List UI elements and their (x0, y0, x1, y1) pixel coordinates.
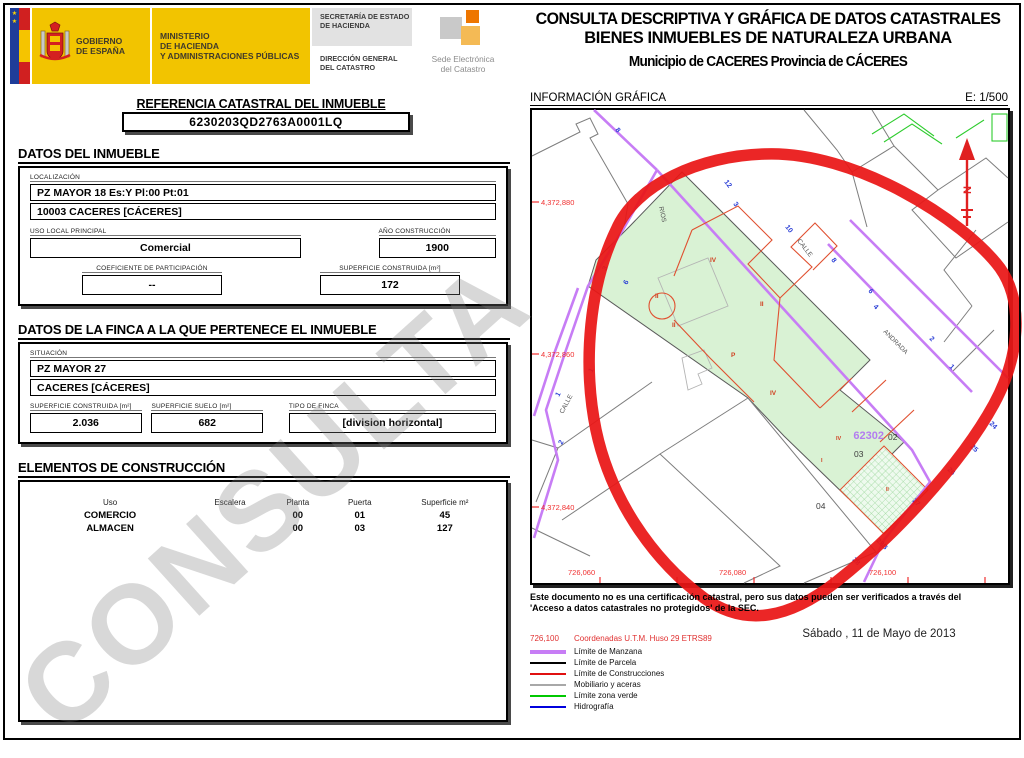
direccion-line2: DEL CATASTRO (320, 64, 412, 73)
cell-superficie: 45 (392, 509, 498, 522)
title-line2: BIENES INMUEBLES DE NATURALEZA URBANA (522, 29, 1014, 48)
spain-flag-strip (19, 8, 30, 84)
svg-text:04: 04 (816, 501, 826, 511)
section-datos-finca: DATOS DE LA FINCA A LA QUE PERTENECE EL … (18, 322, 510, 340)
informacion-grafica-label: INFORMACIÓN GRÁFICA (530, 92, 666, 104)
localizacion-line2: 10003 CACERES [CÁCERES] (30, 203, 496, 220)
svg-text:II: II (672, 322, 676, 329)
note-line2: 'Acceso a datos catastrales no protegido… (530, 603, 759, 613)
map-header-row: INFORMACIÓN GRÁFICA E: 1/500 (530, 92, 1008, 106)
map-svg: CALLE RIOS CALLE ANDRADA 8 12 3 10 8 6 3… (532, 110, 1008, 583)
datos-finca-box: SITUACIÓN PZ MAYOR 27 CACERES [CÁCERES] … (18, 342, 508, 444)
col-planta: Planta (268, 496, 328, 509)
anio-value: 1900 (379, 238, 497, 258)
situacion-line1: PZ MAYOR 27 (30, 360, 496, 377)
document-title: CONSULTA DESCRIPTIVA Y GRÁFICA DE DATOS … (522, 10, 1014, 70)
cell-superficie: 127 (392, 522, 498, 535)
localizacion-label: LOCALIZACIÓN (30, 174, 496, 182)
tipo-finca-value: [division horizontal] (289, 413, 496, 433)
manzana-number: 62302 (853, 430, 884, 442)
sup-suelo-value: 682 (151, 413, 263, 433)
gobierno-line2: DE ESPAÑA (76, 46, 125, 56)
elementos-box: Uso Escalera Planta Puerta Superficie m²… (18, 480, 508, 722)
sup-value: 172 (320, 275, 460, 295)
cell-planta: 00 (268, 522, 328, 535)
svg-text:II: II (655, 293, 659, 300)
sup-suelo-label: SUPERFICIE SUELO [m²] (151, 403, 263, 411)
localizacion-line1: PZ MAYOR 18 Es:Y Pl:00 Pt:01 (30, 184, 496, 201)
map-scale: E: 1/500 (965, 92, 1008, 104)
coord-bottom-3: 726,100 (869, 568, 896, 577)
svg-text:II: II (760, 301, 764, 308)
svg-text:IV: IV (710, 257, 717, 264)
coord-left-1: 4,372,880 (541, 198, 574, 207)
title-line1: CONSULTA DESCRIPTIVA Y GRÁFICA DE DATOS … (529, 10, 1006, 29)
situacion-label: SITUACIÓN (30, 350, 496, 358)
legend-label: Límite de Construcciones (574, 669, 664, 678)
datos-inmueble-box: LOCALIZACIÓN PZ MAYOR 18 Es:Y Pl:00 Pt:0… (18, 166, 508, 306)
col-escalera: Escalera (192, 496, 268, 509)
sede-line2: del Catastro (441, 64, 486, 74)
cell-escalera (192, 509, 268, 522)
legend-label: Límite zona verde (574, 691, 638, 700)
direccion-general: DIRECCIÓN GENERAL DEL CATASTRO (312, 46, 412, 84)
legend-label: Límite de Parcela (574, 658, 636, 667)
legend-item: Hidrografía (530, 701, 830, 712)
legend-coord-sample: 726,100 (530, 634, 574, 643)
cell-puerta: 03 (328, 522, 392, 535)
legend-item: Límite de Parcela (530, 657, 830, 668)
sede-line1: Sede Electrónica (432, 54, 495, 64)
sup-construida-value: 2.036 (30, 413, 142, 433)
coord-left-2: 4,372,860 (541, 350, 574, 359)
cell-planta: 00 (268, 509, 328, 522)
col-superficie: Superficie m² (392, 496, 498, 509)
sup-construida-label: SUPERFICIE CONSTRUIDA [m²] (30, 403, 142, 411)
ministerio-line3: Y ADMINISTRACIONES PÚBLICAS (160, 51, 299, 61)
legend-item: Mobiliario y aceras (530, 679, 830, 690)
svg-text:IV: IV (770, 390, 777, 397)
coef-value: -- (82, 275, 222, 295)
ministerio-line2: DE HACIENDA (160, 41, 219, 51)
construcciones-swatch (530, 673, 566, 675)
elementos-table: Uso Escalera Planta Puerta Superficie m²… (28, 496, 498, 535)
zona-verde-swatch (530, 695, 566, 697)
sede-electronica-logo: Sede Electrónica del Catastro (420, 10, 506, 86)
referencia-value: 6230203QD2763A0001LQ (122, 112, 410, 132)
coat-of-arms-icon (38, 21, 72, 72)
cadastral-document: ★★ GOBIERNO DE ESPAÑA MINISTERIO DE HACI… (0, 0, 1024, 743)
coord-left-3: 4,372,840 (541, 503, 574, 512)
mobiliario-swatch (530, 684, 566, 686)
cell-escalera (192, 522, 268, 535)
secretaria-estado: SECRETARÍA DE ESTADO DE HACIENDA (312, 8, 412, 46)
referencia-title: REFERENCIA CATASTRAL DEL INMUEBLE (10, 97, 512, 111)
ministerio-logo-block: MINISTERIO DE HACIENDA Y ADMINISTRACIONE… (152, 8, 310, 84)
legend-label: Mobiliario y aceras (574, 680, 641, 689)
secretaria-block: SECRETARÍA DE ESTADO DE HACIENDA DIRECCI… (312, 8, 412, 84)
table-row: ALMACEN 00 03 127 (28, 522, 498, 535)
cadastral-map: CALLE RIOS CALLE ANDRADA 8 12 3 10 8 6 3… (530, 108, 1010, 585)
svg-text:IV: IV (836, 436, 842, 442)
uso-value: Comercial (30, 238, 301, 258)
coord-bottom-1: 726,060 (568, 568, 595, 577)
gobierno-logo-block: GOBIERNO DE ESPAÑA (32, 8, 150, 84)
section-datos-inmueble: DATOS DEL INMUEBLE (18, 146, 510, 164)
svg-text:P: P (731, 352, 736, 359)
elementos-header-row: Uso Escalera Planta Puerta Superficie m² (28, 496, 498, 509)
manzana-swatch (530, 650, 566, 654)
situacion-line2: CACERES [CÁCERES] (30, 379, 496, 396)
svg-text:N: N (962, 186, 974, 194)
sede-squares-icon (440, 10, 486, 52)
legend-label: Hidrografía (574, 702, 614, 711)
col-uso: Uso (28, 496, 192, 509)
coef-label: COEFICIENTE DE PARTICIPACIÓN (82, 265, 222, 273)
title-municipio: Municipio de CACERES Provincia de CÁCERE… (537, 54, 999, 70)
cell-uso: COMERCIO (28, 509, 192, 522)
coord-bottom-2: 726,080 (719, 568, 746, 577)
spain-eu-flag: ★★ (10, 8, 30, 84)
uso-label: USO LOCAL PRINCIPAL (30, 228, 301, 236)
table-row: COMERCIO 00 01 45 (28, 509, 498, 522)
legend-label: Límite de Manzana (574, 647, 642, 656)
legend-item: Límite zona verde (530, 690, 830, 701)
legend-coord-label: Coordenadas U.T.M. Huso 29 ETRS89 (574, 634, 712, 643)
legend-item: Límite de Construcciones (530, 668, 830, 679)
tipo-finca-label: TIPO DE FINCA (289, 403, 496, 411)
legend-item: Límite de Manzana (530, 646, 830, 657)
legend-coord-row: 726,100 Coordenadas U.T.M. Huso 29 ETRS8… (530, 634, 830, 643)
svg-text:02: 02 (888, 432, 898, 442)
ministerio-line1: MINISTERIO (160, 31, 210, 41)
col-puerta: Puerta (328, 496, 392, 509)
hidrografia-swatch (530, 706, 566, 708)
eu-flag-strip: ★★ (10, 8, 19, 84)
sup-label: SUPERFICIE CONSTRUIDA [m²] (320, 265, 460, 273)
anio-label: AÑO CONSTRUCCIÓN (379, 228, 497, 236)
secretaria-line2: DE HACIENDA (320, 22, 412, 31)
cell-uso: ALMACEN (28, 522, 192, 535)
note-line1: Este documento no es una certificación c… (530, 592, 961, 602)
section-elementos: ELEMENTOS DE CONSTRUCCIÓN (18, 460, 510, 478)
svg-text:03: 03 (854, 449, 864, 459)
map-legend: 726,100 Coordenadas U.T.M. Huso 29 ETRS8… (530, 634, 830, 712)
disclaimer-note: Este documento no es una certificación c… (530, 592, 1008, 614)
parcela-swatch (530, 662, 566, 664)
gobierno-line1: GOBIERNO (76, 36, 122, 46)
cell-puerta: 01 (328, 509, 392, 522)
